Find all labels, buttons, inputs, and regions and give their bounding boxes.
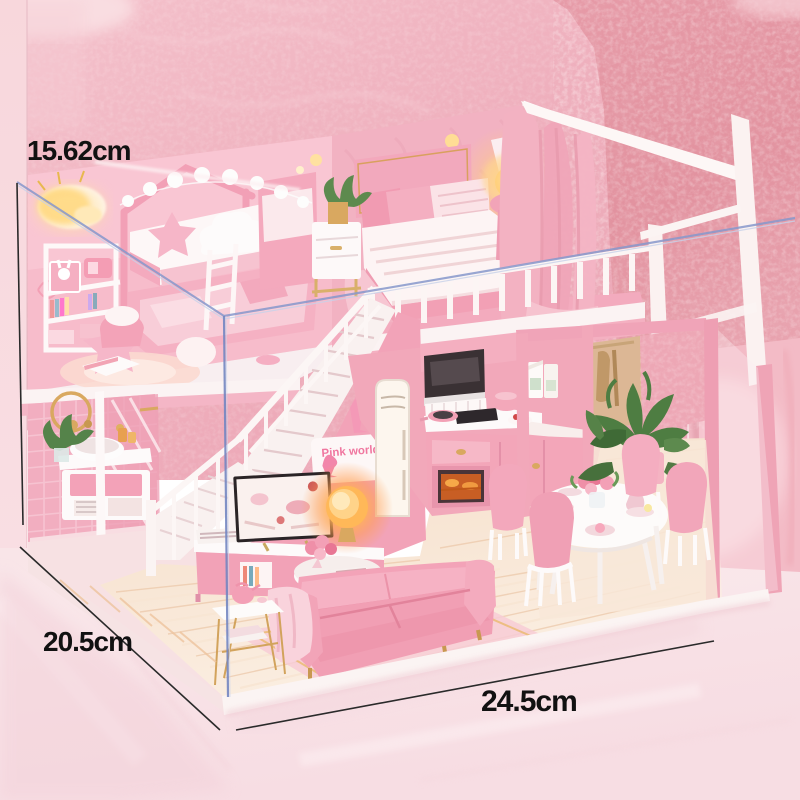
svg-text:24.5cm: 24.5cm xyxy=(481,685,577,718)
svg-text:15.62cm: 15.62cm xyxy=(27,135,131,166)
svg-text:20.5cm: 20.5cm xyxy=(43,626,132,657)
